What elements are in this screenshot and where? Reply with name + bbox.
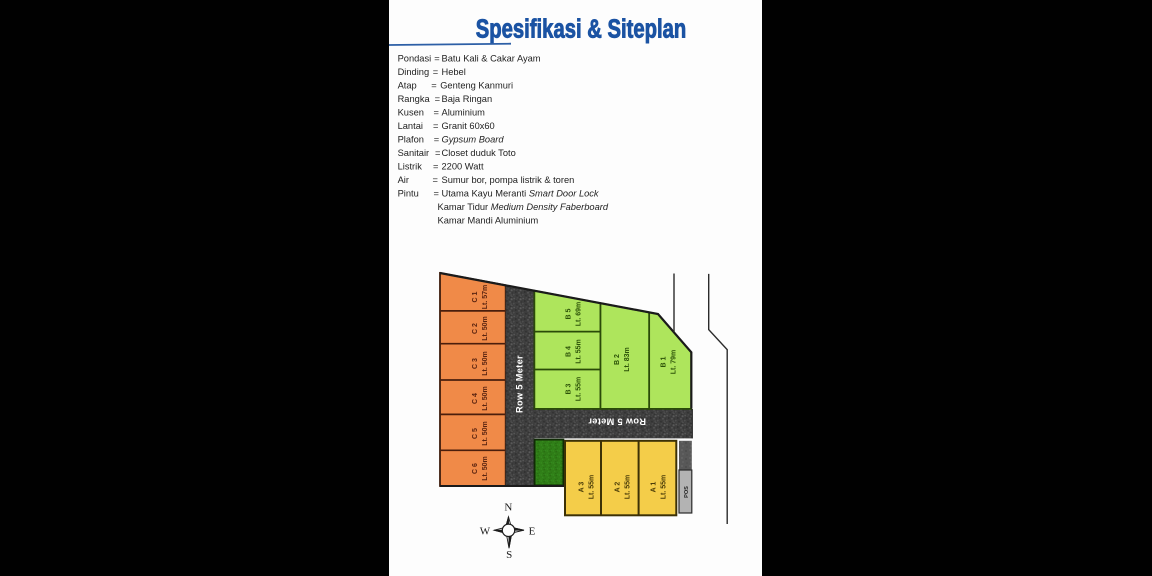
svg-text:N: N [504,501,512,513]
svg-text:A 1: A 1 [651,482,658,493]
svg-text:B 5: B 5 [566,308,573,319]
svg-text:B 4: B 4 [566,346,573,357]
svg-text:Pondasi: Pondasi [398,54,432,64]
svg-text:=: = [435,148,440,158]
svg-text:Batu Kali & Cakar Ayam: Batu Kali & Cakar Ayam [442,54,541,64]
svg-text:Air: Air [398,175,409,185]
svg-text:Utama Kayu Meranti Smart Door: Utama Kayu Meranti Smart Door Lock [442,189,600,199]
svg-text:=: = [433,175,438,185]
svg-text:Lt. 57m: Lt. 57m [482,285,489,310]
svg-text:Lt. 50m: Lt. 50m [482,316,489,341]
svg-text:Pintu: Pintu [398,189,419,199]
svg-text:Lt. 69m: Lt. 69m [575,302,582,327]
svg-text:Hebel: Hebel [442,67,466,77]
svg-text:W: W [480,526,491,538]
svg-text:Lt. 55m: Lt. 55m [575,377,582,402]
svg-text:=: = [434,54,439,64]
svg-text:Listrik: Listrik [398,162,423,172]
svg-text:A 2: A 2 [615,482,622,493]
svg-text:Closet duduk Toto: Closet duduk Toto [442,148,516,158]
svg-text:Genteng Kanmuri: Genteng Kanmuri [440,81,513,91]
svg-text:Lt. 83m: Lt. 83m [624,347,631,372]
svg-text:=: = [434,135,439,145]
svg-text:Kamar Mandi Aluminium: Kamar Mandi Aluminium [438,216,539,226]
svg-text:Kusen: Kusen [398,108,424,118]
svg-text:=: = [435,94,440,104]
svg-text:B 2: B 2 [614,354,621,365]
svg-text:=: = [434,189,439,199]
svg-text:Plafon: Plafon [398,135,424,145]
svg-text:C 5: C 5 [472,428,479,439]
svg-text:E: E [529,526,536,538]
svg-text:Lt. 55m: Lt. 55m [624,475,631,500]
svg-text:POS: POS [684,486,690,498]
svg-text:Lt. 50m: Lt. 50m [482,456,489,481]
svg-text:=: = [433,67,438,77]
svg-text:Row 5 Meter: Row 5 Meter [515,355,525,413]
svg-text:Row 5 Meter: Row 5 Meter [588,417,646,427]
svg-text:=: = [434,108,439,118]
svg-text:Lt. 50m: Lt. 50m [482,421,489,446]
svg-text:Aluminium: Aluminium [442,108,486,118]
svg-text:=: = [433,121,438,131]
svg-text:Baja Ringan: Baja Ringan [442,94,493,104]
svg-text:Lt. 55m: Lt. 55m [660,475,667,500]
svg-text:C 2: C 2 [472,323,479,334]
svg-text:=: = [431,81,436,91]
svg-text:Granit 60x60: Granit 60x60 [442,121,495,131]
svg-text:Lt. 55m: Lt. 55m [588,475,595,500]
svg-text:A 3: A 3 [579,482,586,493]
svg-text:Spesifikasi & Siteplan: Spesifikasi & Siteplan [476,14,686,43]
svg-text:Kamar Tidur Medium Density Fab: Kamar Tidur Medium Density Faberboard [438,202,609,212]
svg-text:Sanitair: Sanitair [398,148,430,158]
svg-text:2200 Watt: 2200 Watt [442,162,484,172]
svg-text:B 1: B 1 [661,356,668,367]
svg-text:Dinding: Dinding [398,67,430,77]
svg-text:C 1: C 1 [472,291,479,302]
svg-text:S: S [506,549,512,561]
svg-text:Lt. 50m: Lt. 50m [482,386,489,411]
svg-text:=: = [433,162,438,172]
svg-text:C 4: C 4 [472,393,479,404]
svg-text:Lantai: Lantai [398,121,423,131]
svg-text:Lt. 79m: Lt. 79m [670,350,677,375]
svg-text:Lt. 50m: Lt. 50m [482,351,489,376]
svg-text:Atap: Atap [398,81,417,91]
svg-text:C 3: C 3 [472,358,479,369]
svg-text:C 6: C 6 [472,463,479,474]
svg-text:Sumur bor, pompa listrik & tor: Sumur bor, pompa listrik & toren [442,175,575,185]
svg-text:Rangka: Rangka [398,94,431,104]
svg-text:B 3: B 3 [566,383,573,394]
svg-text:Gypsum Board: Gypsum Board [442,135,505,145]
svg-text:Lt. 55m: Lt. 55m [575,339,582,364]
